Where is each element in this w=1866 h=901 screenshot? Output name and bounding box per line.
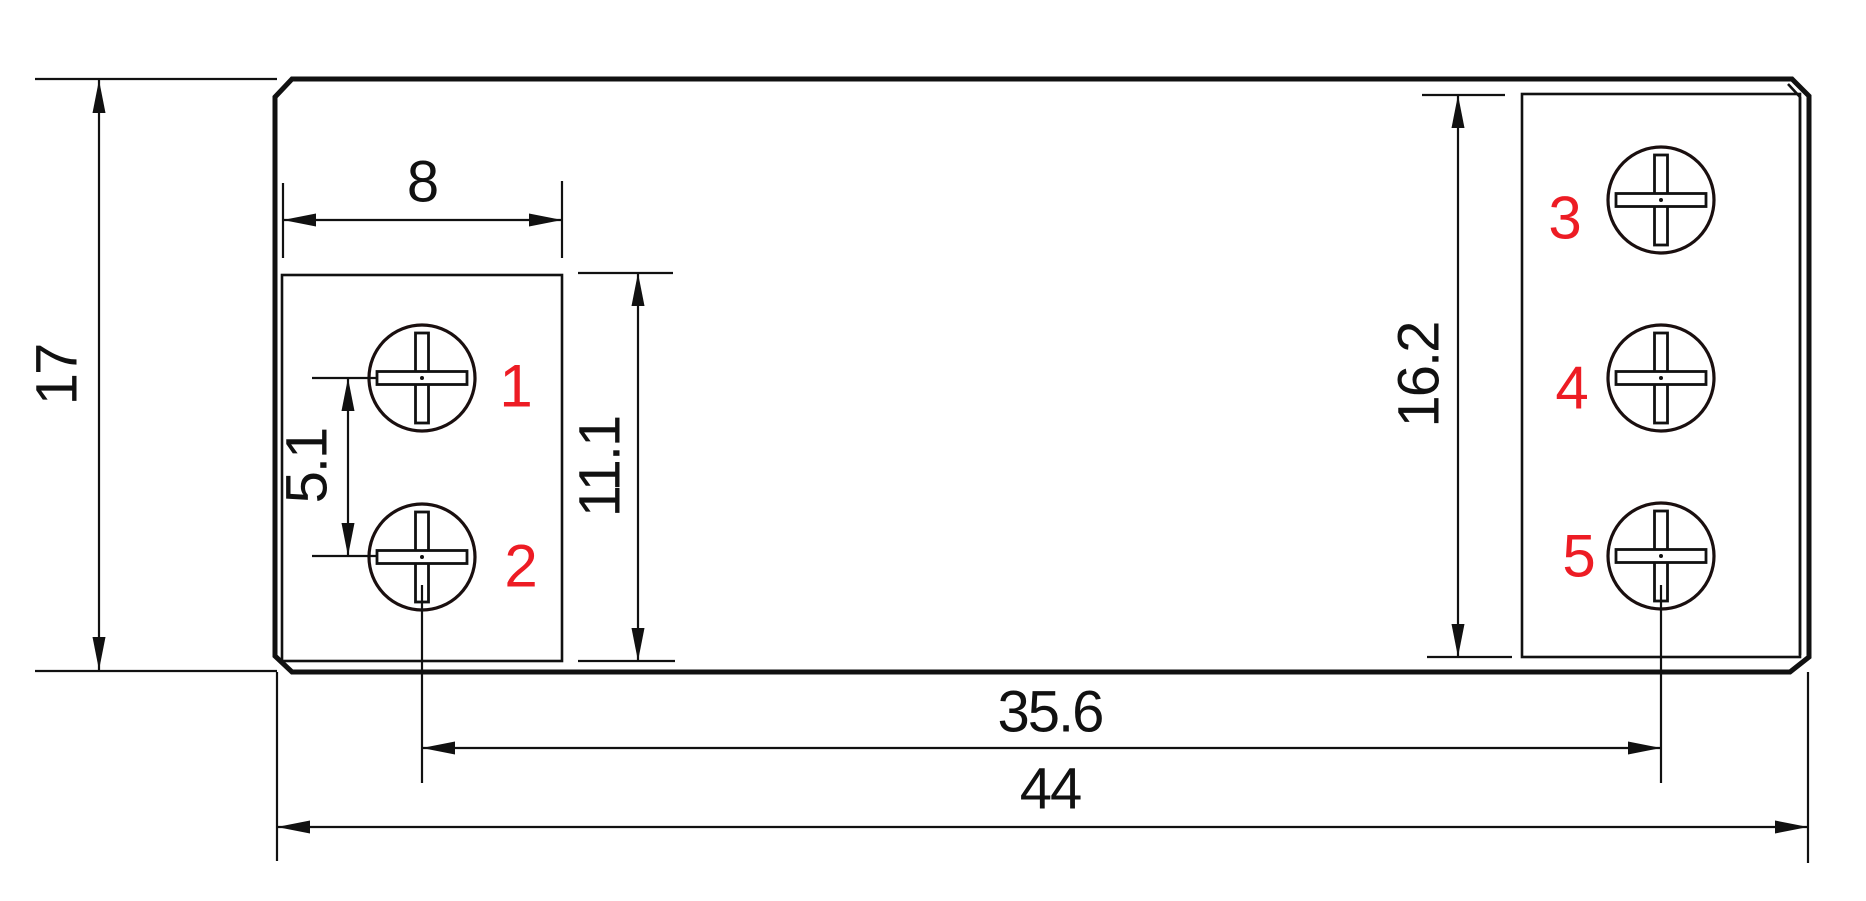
arrowhead-down [93, 637, 106, 670]
screw-terminal-1 [369, 325, 475, 431]
arrowhead-up [342, 378, 355, 411]
dimension-value: 8 [407, 150, 437, 215]
dimension-value: 44 [1020, 757, 1081, 822]
arrowhead-up [632, 273, 645, 306]
drawing-page: 1 2 3 4 5 17 8 5.1 11.1 [0, 0, 1866, 901]
terminal-label-5: 5 [1562, 523, 1595, 590]
dimension-value: 5.1 [275, 429, 340, 504]
dimension-overall-height: 17 [25, 79, 278, 671]
dimension-value: 17 [25, 345, 90, 406]
arrowhead-left [283, 214, 316, 227]
dimension-left-block-width: 8 [283, 150, 562, 259]
terminal-label-1: 1 [499, 353, 532, 420]
screw-center-mark [420, 376, 424, 380]
dimension-value: 16.2 [1387, 323, 1452, 428]
arrowhead-left [422, 742, 455, 755]
screw-center-mark [420, 555, 424, 559]
dimension-right-block-height: 16.2 [1387, 95, 1513, 657]
arrowhead-right [529, 214, 562, 227]
dimension-value: 35.6 [998, 680, 1103, 745]
arrowhead-up [93, 80, 106, 113]
arrowhead-up [1452, 95, 1465, 128]
arrowhead-left [277, 821, 310, 834]
arrowhead-down [1452, 624, 1465, 657]
terminal-label-4: 4 [1555, 355, 1588, 422]
screw-center-mark [1659, 554, 1663, 558]
dimension-left-block-height: 11.1 [568, 273, 676, 661]
terminal-label-3: 3 [1548, 185, 1581, 252]
arrowhead-right [1628, 742, 1661, 755]
arrowhead-down [342, 523, 355, 556]
technical-drawing-canvas: 1 2 3 4 5 17 8 5.1 11.1 [0, 0, 1866, 901]
screw-center-mark [1659, 376, 1663, 380]
arrowhead-right [1775, 821, 1808, 834]
screw-terminal-3 [1608, 147, 1714, 253]
dimension-value: 11.1 [568, 417, 633, 518]
terminal-label-2: 2 [504, 533, 537, 600]
screw-center-mark [1659, 198, 1663, 202]
arrowhead-down [632, 628, 645, 661]
screw-terminal-4 [1608, 325, 1714, 431]
dimension-terminal-pitch: 5.1 [275, 378, 377, 556]
dimension-terminal-column-span: 35.6 [422, 585, 1661, 783]
